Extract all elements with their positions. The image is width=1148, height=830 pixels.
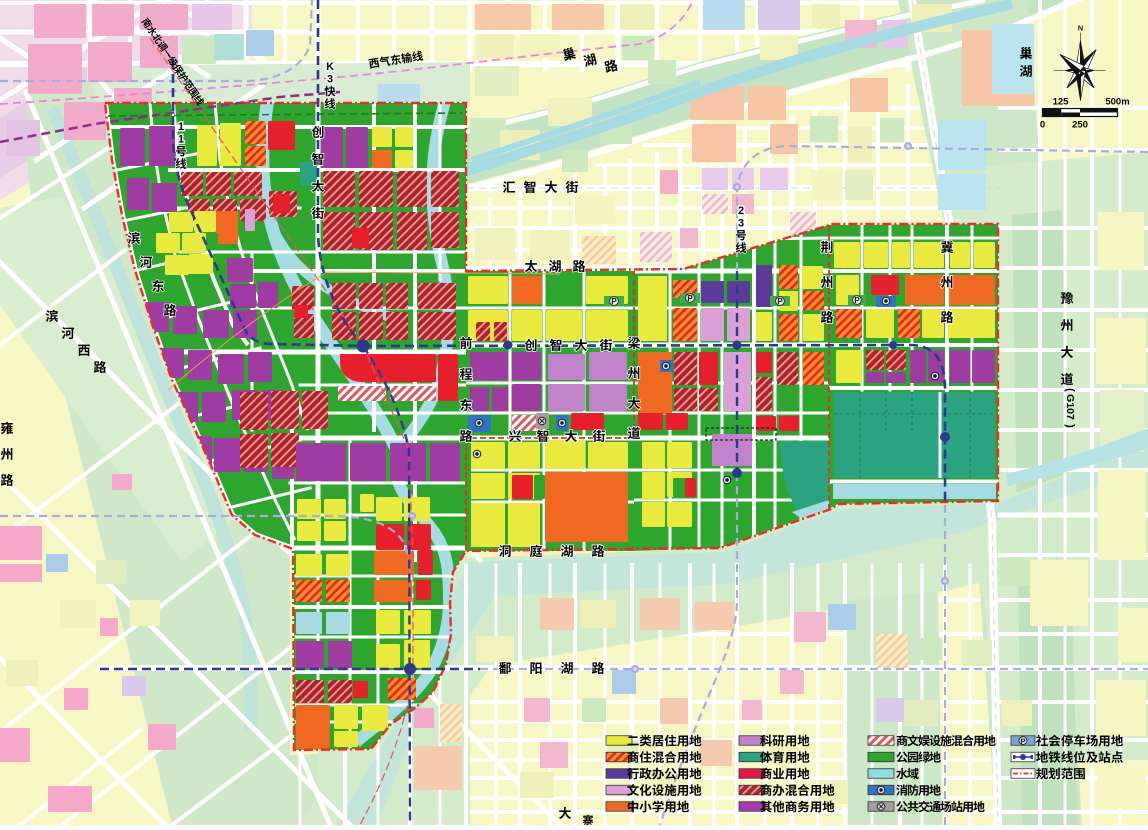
svg-text:G107: G107 (1064, 394, 1076, 420)
svg-text:0: 0 (1040, 120, 1045, 131)
svg-text:P: P (687, 294, 693, 303)
svg-text:P: P (777, 297, 783, 306)
svg-text:3: 3 (327, 74, 333, 86)
svg-text:2: 2 (738, 205, 744, 217)
svg-text:P: P (854, 296, 860, 305)
svg-text:(: ( (1064, 388, 1076, 392)
svg-text:500m: 500m (1105, 97, 1129, 108)
svg-text:1: 1 (178, 121, 184, 133)
svg-text:125: 125 (1053, 97, 1070, 108)
svg-text:250: 250 (1072, 120, 1088, 131)
svg-text:P: P (1020, 736, 1025, 745)
svg-text:N: N (1078, 24, 1083, 33)
svg-text:K: K (326, 61, 334, 73)
svg-text:P: P (611, 297, 617, 306)
svg-text:1: 1 (178, 134, 184, 146)
svg-text:3: 3 (738, 218, 744, 230)
svg-text:): ) (1064, 424, 1076, 428)
